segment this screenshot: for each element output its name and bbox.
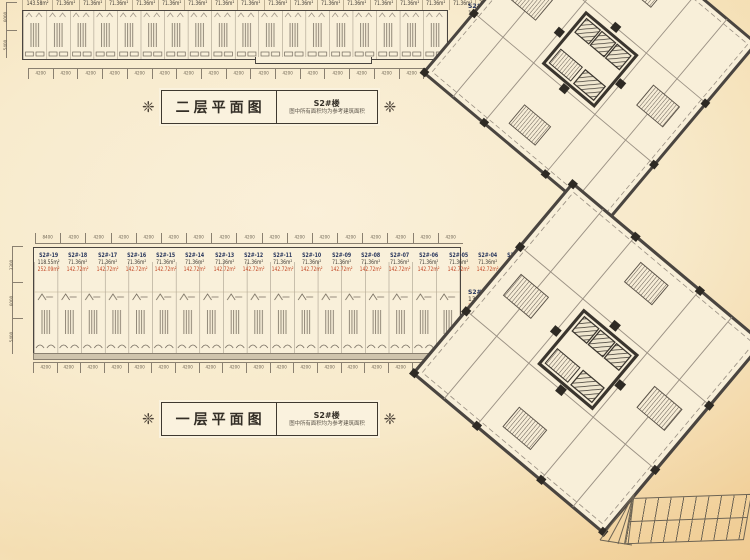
dimension-value: 5400 [7,30,17,58]
building-name: S2#楼 [285,99,369,108]
unit-label: S2#-12 71.36m² 142.72m² [239,252,268,282]
unit-area-label: 143.58m² [22,0,52,10]
floor2-strip-bay [255,57,372,64]
area-note: 图中所有面积均为参考建筑面积 [289,420,365,427]
unit-id: S2#-06 [417,252,440,259]
unit-area-total: 142.72m² [418,266,440,273]
dimension-value: 4200 [270,363,294,373]
dimension-value: 4200 [28,69,53,79]
unit-area-label: 71.36m² [105,0,131,10]
unit-area-label: 71.36m² [79,0,105,10]
ramp-grid [624,494,750,545]
unit-label: S2#-16 71.36m² 142.72m² [122,252,151,282]
dimension-value: 4200 [199,363,223,373]
unit-label: S2#-11 71.36m² 142.72m² [268,252,297,282]
unit-area: 71.36m² [330,259,352,266]
unit-label: S2#-13 71.36m² 142.72m² [210,252,239,282]
dimension-value: 6000 [13,282,23,318]
unit-id: S2#-08 [359,252,382,259]
unit-area: 71.36m² [359,259,381,266]
unit-area-total: 252.09m² [38,266,60,273]
unit-area-label: 71.36m² [52,0,78,10]
dimension-value: 4200 [387,233,412,243]
unit-id: S2#-04 [476,252,499,259]
unit-label: S2#-10 71.36m² 142.72m² [297,252,326,282]
unit-area-label: 71.36m² [211,0,237,10]
unit-id: S2#-14 [183,252,206,259]
floor1-left-dimensions: 330060005400 [12,246,23,354]
unit-label: S2#-08 71.36m² 142.72m² [356,252,385,282]
floor1-title-box: 一层平面图 S2#楼 图中所有面积均为参考建筑面积 [161,402,378,436]
floor2-title: 二层平面图 [162,91,276,123]
dimension-value: 8400 [35,233,60,243]
dimension-value: 4200 [102,69,127,79]
dimension-value: 4200 [151,363,175,373]
unit-area-total: 142.72m² [242,266,264,273]
unit-area: 118.55m² [38,259,60,266]
floor1-top-dimensions: 8400420042004200420042004200420042004200… [35,233,463,244]
dimension-value: 4200 [60,233,85,243]
unit-area-total: 142.72m² [359,266,381,273]
dimension-value: 4200 [287,233,312,243]
dimension-value: 4200 [275,69,300,79]
unit-area: 71.36m² [67,259,89,266]
floor2-strip-building [22,10,448,60]
unit-area-total: 142.72m² [272,266,294,273]
floor1-title-plaque: ❈ 一层平面图 S2#楼 图中所有面积均为参考建筑面积 ❈ [142,402,396,436]
unit-area-total: 142.72m² [96,266,118,273]
floor1-strip-building: S2#-19 118.55m² 252.09m² S2#-18 71.36m² … [33,247,461,355]
unit-label: S2#-09 71.36m² 142.72m² [327,252,356,282]
dimension-value: 4200 [128,363,152,373]
dimension-value: 4200 [57,363,81,373]
area-note: 图中所有面积均为参考建筑面积 [289,108,365,115]
floor1-canopy-bar [33,353,461,360]
unit-area-label: 71.36m² [264,0,290,10]
flourish-right-icon: ❈ [384,100,397,115]
flourish-left-icon: ❈ [142,412,155,427]
unit-area: 71.36m² [447,259,469,266]
unit-area-label: 71.36m² [132,0,158,10]
floor1-bottom-dimensions: 4200420042004200420042004200420042004200… [33,362,459,373]
dimension-value: 4200 [337,233,362,243]
dimension-value: 4200 [293,363,317,373]
unit-id: S2#-19 [37,252,60,259]
dimension-value: 4200 [349,69,374,79]
dimension-value: 4200 [341,363,365,373]
building-name: S2#楼 [285,411,369,420]
dimension-value: 4200 [136,233,161,243]
unit-id: S2#-05 [447,252,470,259]
dimension-value: 4200 [250,69,275,79]
dimension-value: 4200 [53,69,78,79]
unit-area-total: 142.72m² [330,266,352,273]
unit-id: S2#-11 [271,252,294,259]
unit-id: S2#-17 [96,252,119,259]
dimension-value: 5400 [13,318,23,354]
dimension-value: 4200 [262,233,287,243]
dimension-value: 4200 [85,233,110,243]
floor2-strip-units-drawing [23,11,447,59]
unit-id: S2#-10 [300,252,323,259]
dimension-value: 4200 [111,233,136,243]
dimension-value: 4200 [374,69,399,79]
unit-label: S2#-06 71.36m² 142.72m² [414,252,443,282]
dimension-value: 4200 [317,363,341,373]
dimension-value: 4200 [222,363,246,373]
floor1-unit-labels: S2#-19 118.55m² 252.09m² S2#-18 71.36m² … [34,252,460,282]
unit-area-label: 71.36m² [184,0,210,10]
floor2-title-plaque: ❈ 二层平面图 S2#楼 图中所有面积均为参考建筑面积 ❈ [142,90,396,124]
unit-area: 71.36m² [125,259,147,266]
flourish-left-icon: ❈ [142,100,155,115]
dimension-value: 4200 [77,69,102,79]
unit-area: 71.36m² [96,259,118,266]
unit-area: 71.36m² [184,259,206,266]
unit-id: S2#-13 [213,252,236,259]
dimension-value: 4200 [246,363,270,373]
unit-id: S2#-12 [242,252,265,259]
dimension-value: 4200 [413,233,438,243]
dimension-value: 3300 [13,246,23,282]
unit-area-total: 142.72m² [213,266,235,273]
unit-area-total: 142.72m² [301,266,323,273]
floor-plan-sheet: 60005400 143.58m²71.36m²71.36m²71.36m²71… [0,0,750,560]
unit-area-total: 142.72m² [184,266,206,273]
dimension-value: 4200 [161,233,186,243]
dimension-value: 4200 [324,69,349,79]
dimension-value: 4200 [176,69,201,79]
unit-area: 71.36m² [301,259,323,266]
unit-label: S2#-07 71.36m² 142.72m² [385,252,414,282]
unit-area: 71.36m² [155,259,177,266]
unit-label: S2#-19 118.55m² 252.09m² [34,252,63,282]
dimension-value: 4200 [127,69,152,79]
unit-area-label: 71.36m² [317,0,343,10]
unit-area-label: 71.36m² [422,0,448,10]
dimension-value: 4200 [175,363,199,373]
dimension-value: 4200 [438,233,463,243]
unit-area-label: 71.36m² [290,0,316,10]
unit-area: 71.36m² [418,259,440,266]
unit-id: S2#-18 [66,252,89,259]
unit-area-total: 142.72m² [125,266,147,273]
dimension-value: 4200 [211,233,236,243]
unit-area: 71.36m² [213,259,235,266]
dimension-value: 4200 [152,69,177,79]
unit-area-label: 71.36m² [370,0,396,10]
unit-area: 71.36m² [476,259,498,266]
unit-label: S2#-15 71.36m² 142.72m² [151,252,180,282]
unit-label: S2#-18 71.36m² 142.72m² [63,252,92,282]
dimension-value: 4200 [300,69,325,79]
unit-id: S2#-09 [330,252,353,259]
unit-area-total: 142.72m² [389,266,411,273]
dimension-value: 4200 [201,69,226,79]
dimension-value: 4200 [80,363,104,373]
unit-area-label: 71.36m² [343,0,369,10]
unit-label: S2#-17 71.36m² 142.72m² [93,252,122,282]
unit-area: 71.36m² [242,259,264,266]
unit-id: S2#-07 [388,252,411,259]
dimension-value: 6000 [7,2,17,30]
unit-area-total: 142.72m² [447,266,469,273]
ramp-fan [596,490,640,546]
unit-area: 71.36m² [272,259,294,266]
dimension-value: 4200 [388,363,412,373]
dimension-value: 4200 [362,233,387,243]
floor1-title: 一层平面图 [162,403,276,435]
floor2-title-box: 二层平面图 S2#楼 图中所有面积均为参考建筑面积 [161,90,378,124]
dimension-value: 4200 [236,233,261,243]
dimension-value: 4200 [33,363,57,373]
floor2-strip-area-labels: 143.58m²71.36m²71.36m²71.36m²71.36m²71.3… [22,0,446,10]
unit-id: S2#-15 [154,252,177,259]
unit-label: S2#-05 71.36m² 142.72m² [444,252,473,282]
unit-area-label: 71.36m² [237,0,263,10]
dimension-value: 4200 [226,69,251,79]
unit-area-total: 142.72m² [155,266,177,273]
unit-area-label: 71.36m² [158,0,184,10]
dimension-value: 4200 [399,69,424,79]
unit-label: S2#-14 71.36m² 142.72m² [180,252,209,282]
unit-area-total: 142.72m² [67,266,89,273]
unit-id: S2#-16 [125,252,148,259]
floor2-left-dimensions: 60005400 [6,2,17,58]
dimension-value: 4200 [186,233,211,243]
unit-area: 71.36m² [389,259,411,266]
dimension-value: 4200 [364,363,388,373]
floor2-bottom-dimensions: 4200420042004200420042004200420042004200… [28,68,448,79]
unit-area-label: 71.36m² [396,0,422,10]
dimension-value: 4200 [312,233,337,243]
flourish-right-icon: ❈ [384,412,397,427]
dimension-value: 4200 [104,363,128,373]
